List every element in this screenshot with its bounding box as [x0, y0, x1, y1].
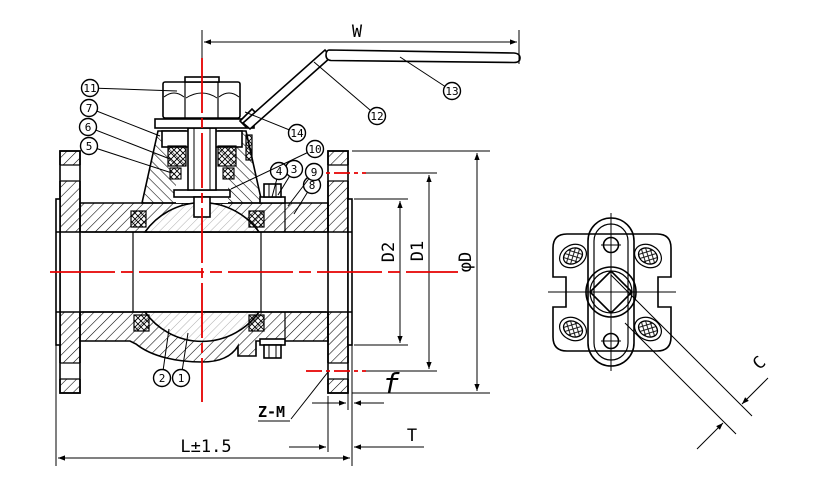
bolt-slot-tl — [555, 240, 590, 273]
dim-label-t: T — [407, 426, 417, 446]
pad-hole-bottom — [601, 331, 621, 351]
bolt-slot-bl — [555, 313, 590, 346]
top-flange-view: C — [548, 213, 770, 449]
dim-label-phid: φD — [456, 252, 476, 272]
svg-text:1: 1 — [178, 372, 185, 385]
dim-label-c: C — [749, 353, 770, 375]
ball-valve-engineering-drawing: C W D2 D1 φD f T L±1.5 Z-M — [0, 0, 835, 500]
dim-label-d2: D2 — [379, 242, 399, 262]
dim-label-l: L±1.5 — [180, 437, 231, 457]
callout-13: 13 — [400, 57, 461, 100]
svg-text:7: 7 — [86, 102, 93, 115]
bolt-hole-callout: Z-M — [258, 372, 328, 421]
body-bolt-lower — [260, 339, 285, 358]
stem-seal-right — [223, 168, 234, 179]
seat-ring-tl — [131, 211, 146, 227]
svg-text:9: 9 — [311, 166, 318, 179]
svg-text:13: 13 — [445, 85, 458, 98]
svg-text:6: 6 — [85, 121, 92, 134]
dim-label-zm: Z-M — [258, 403, 285, 421]
handle-grip — [326, 50, 520, 63]
svg-text:12: 12 — [370, 110, 383, 123]
stem-packing-left — [168, 146, 186, 166]
stem-packing-right — [218, 146, 236, 166]
svg-text:10: 10 — [308, 143, 321, 156]
pad-hole-top — [601, 235, 621, 255]
stem-seal-left — [170, 168, 181, 179]
svg-text:5: 5 — [86, 140, 93, 153]
svg-text:2: 2 — [159, 372, 166, 385]
bolt-slot-br — [630, 313, 665, 346]
svg-text:14: 14 — [290, 127, 304, 140]
dim-label-d1: D1 — [408, 241, 428, 261]
bolt-slot-tr — [630, 240, 665, 273]
gland-stud — [246, 135, 252, 160]
seat-ring-br — [249, 315, 264, 331]
handle-washer-plate — [155, 119, 254, 128]
callout-12: 12 — [314, 62, 386, 125]
seat-ring-tr — [249, 211, 264, 227]
drawing-sheet: C W D2 D1 φD f T L±1.5 Z-M — [0, 0, 835, 500]
dim-label-w: W — [352, 22, 363, 42]
svg-text:11: 11 — [83, 82, 96, 95]
dim-label-f: f — [383, 367, 401, 400]
seat-ring-bl — [134, 315, 149, 331]
front-section-view — [56, 50, 520, 393]
svg-text:3: 3 — [291, 163, 298, 176]
